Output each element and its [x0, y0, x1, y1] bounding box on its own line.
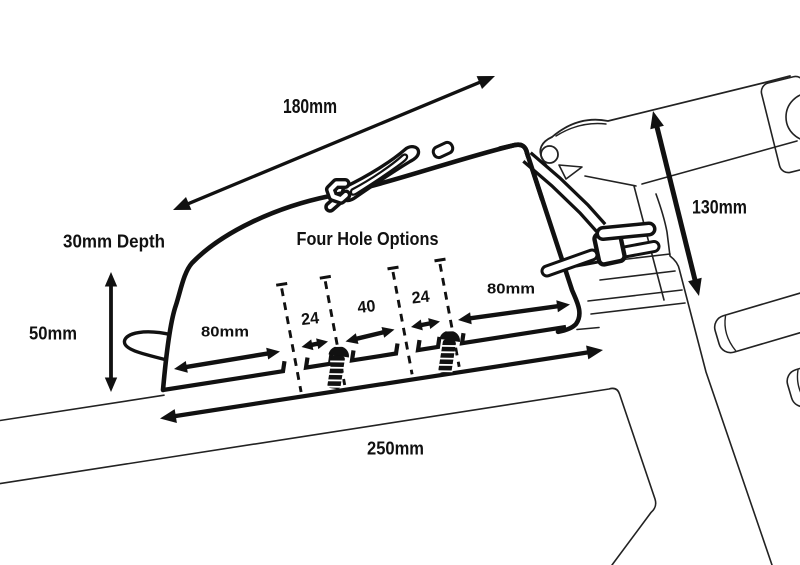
svg-text:24: 24 — [300, 309, 321, 329]
svg-text:130mm: 130mm — [692, 198, 747, 219]
svg-text:30mm Depth: 30mm Depth — [63, 231, 165, 252]
svg-text:24: 24 — [411, 288, 432, 308]
svg-text:Four Hole Options: Four Hole Options — [297, 228, 439, 249]
svg-text:80mm: 80mm — [201, 325, 249, 341]
svg-text:80mm: 80mm — [487, 281, 535, 298]
svg-text:250mm: 250mm — [367, 438, 424, 459]
svg-text:40: 40 — [357, 297, 377, 317]
svg-text:180mm: 180mm — [283, 96, 337, 118]
svg-text:50mm: 50mm — [29, 323, 77, 344]
